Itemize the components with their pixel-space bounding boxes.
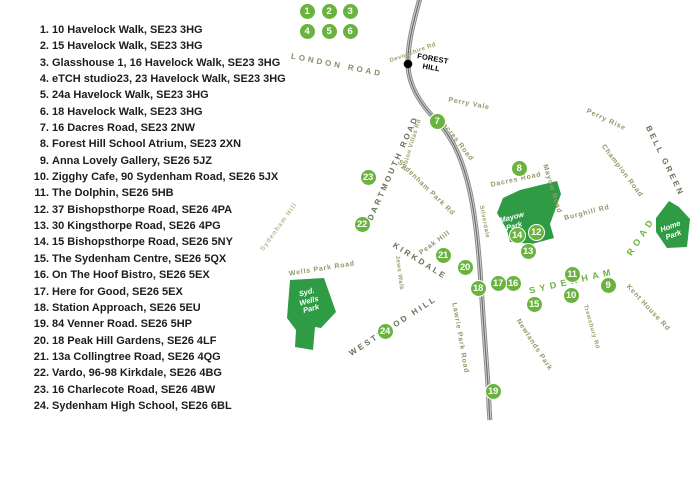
map-marker-9: 9: [600, 277, 617, 294]
map-marker-7: 7: [429, 113, 446, 130]
map-marker-8: 8: [511, 160, 528, 177]
map-marker-23: 23: [360, 169, 377, 186]
sydenham-arts-map: 1.10 Havelock Walk, SE23 3HG2.15 Haveloc…: [0, 0, 690, 489]
map-marker-14: 14: [509, 227, 526, 244]
map-marker-15: 15: [526, 296, 543, 313]
map-marker-13: 13: [520, 243, 537, 260]
map-marker-22: 22: [354, 216, 371, 233]
map-marker-2: 2: [321, 3, 338, 20]
map-marker-10: 10: [563, 287, 580, 304]
map-marker-19: 19: [485, 383, 502, 400]
map-marker-16: 16: [505, 275, 522, 292]
map-marker-17: 17: [490, 275, 507, 292]
map-marker-21: 21: [435, 247, 452, 264]
markers-layer: 123456789101112131415161718192021222324: [0, 0, 690, 489]
map-marker-5: 5: [321, 23, 338, 40]
map-marker-20: 20: [457, 259, 474, 276]
map-marker-3: 3: [342, 3, 359, 20]
map-marker-1: 1: [299, 3, 316, 20]
map-marker-12: 12: [528, 224, 545, 241]
map-marker-4: 4: [299, 23, 316, 40]
map-marker-18: 18: [470, 280, 487, 297]
map-marker-24: 24: [377, 323, 394, 340]
map-marker-11: 11: [564, 266, 581, 283]
map-marker-6: 6: [342, 23, 359, 40]
